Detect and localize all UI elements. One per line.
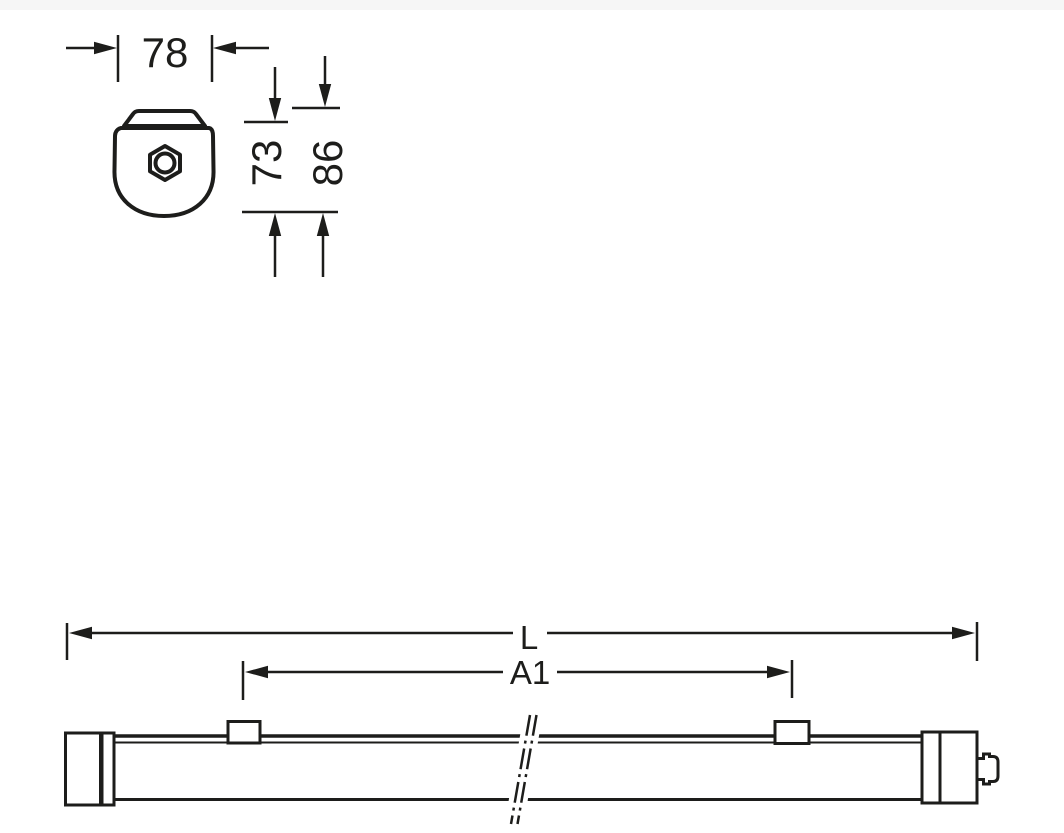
dim-height-total: 86 [292,56,351,277]
dim-height-total-label: 86 [304,140,351,187]
end-cap-right-collar [922,732,940,803]
dim-length-arrow-right-icon [952,627,975,639]
end-cap-right [940,732,977,803]
side-elevation-view: L A1 [66,619,999,833]
end-cap-left [66,733,101,805]
housing-side-view [66,713,999,833]
dim-anchor-arrow-left-icon [245,666,268,678]
luminaire-dimension-drawing: 78 73 86 [0,0,1064,833]
mounting-clip-left [228,722,260,744]
end-cap-left-collar [102,733,114,805]
dim-width: 78 [66,29,269,82]
bolt-hole-circle [156,154,175,173]
dim-length-arrow-left-icon [69,627,92,639]
dim-length-label: L [520,619,538,656]
dim-height-body: 73 [243,67,290,277]
technical-drawing-svg: 78 73 86 [0,0,1064,833]
dim-height-body-arrow-up-icon [269,213,281,236]
housing-cross-section [114,111,213,216]
dim-height-body-arrow-down-icon [269,98,281,121]
dim-anchor-spacing-label: A1 [510,654,550,691]
dim-height-body-label: 73 [243,140,290,187]
break-line-mask [503,713,543,833]
cable-gland [977,754,998,784]
dim-height-total-arrow-down-icon [319,84,331,107]
dim-width-arrow-left-icon [94,42,117,54]
dim-width-arrow-right-icon [213,42,236,54]
diffuser-clip-profile [124,111,205,126]
dim-width-label: 78 [142,29,189,76]
cross-section-view: 78 73 86 [66,29,351,277]
mounting-clip-right [775,722,809,744]
dim-anchor-arrow-right-icon [767,666,790,678]
dim-height-total-arrow-up-icon [317,213,329,236]
dim-anchor-spacing: A1 [243,654,792,700]
